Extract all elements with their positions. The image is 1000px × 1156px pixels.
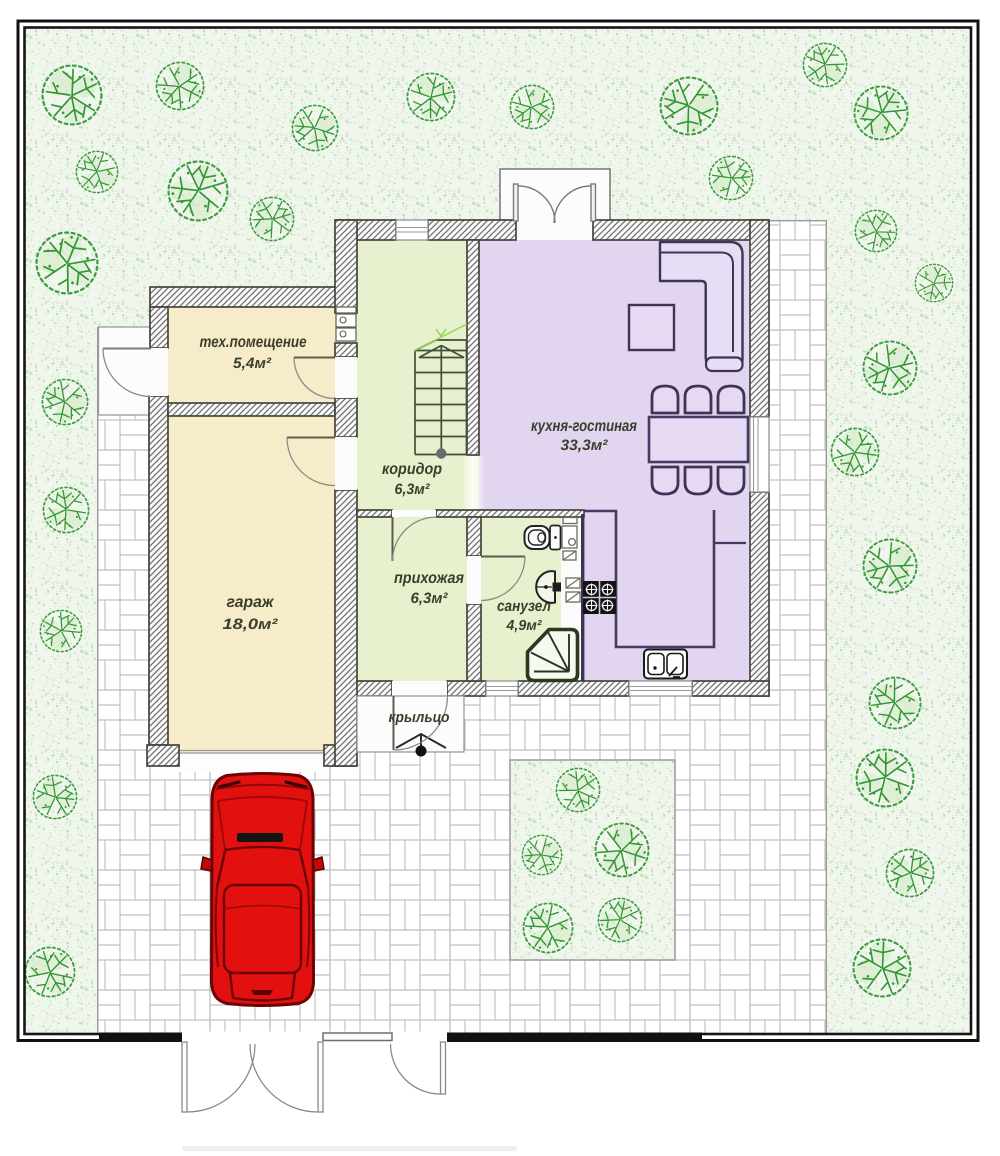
svg-text:4,9м²: 4,9м² <box>506 618 543 634</box>
svg-text:прихожая: прихожая <box>394 570 465 587</box>
svg-text:кухня-гостиная: кухня-гостиная <box>531 418 637 435</box>
svg-text:тех.помещение: тех.помещение <box>200 334 307 351</box>
svg-text:5,4м²: 5,4м² <box>233 355 272 372</box>
svg-text:6,3м²: 6,3м² <box>411 590 449 607</box>
svg-text:гараж: гараж <box>227 594 275 611</box>
svg-text:коридор: коридор <box>382 461 442 478</box>
svg-text:18,0м²: 18,0м² <box>223 616 279 633</box>
svg-text:крыльцо: крыльцо <box>389 709 450 726</box>
svg-text:санузел: санузел <box>497 598 551 615</box>
svg-text:6,3м²: 6,3м² <box>395 481 431 498</box>
svg-text:33,3м²: 33,3м² <box>561 437 609 454</box>
